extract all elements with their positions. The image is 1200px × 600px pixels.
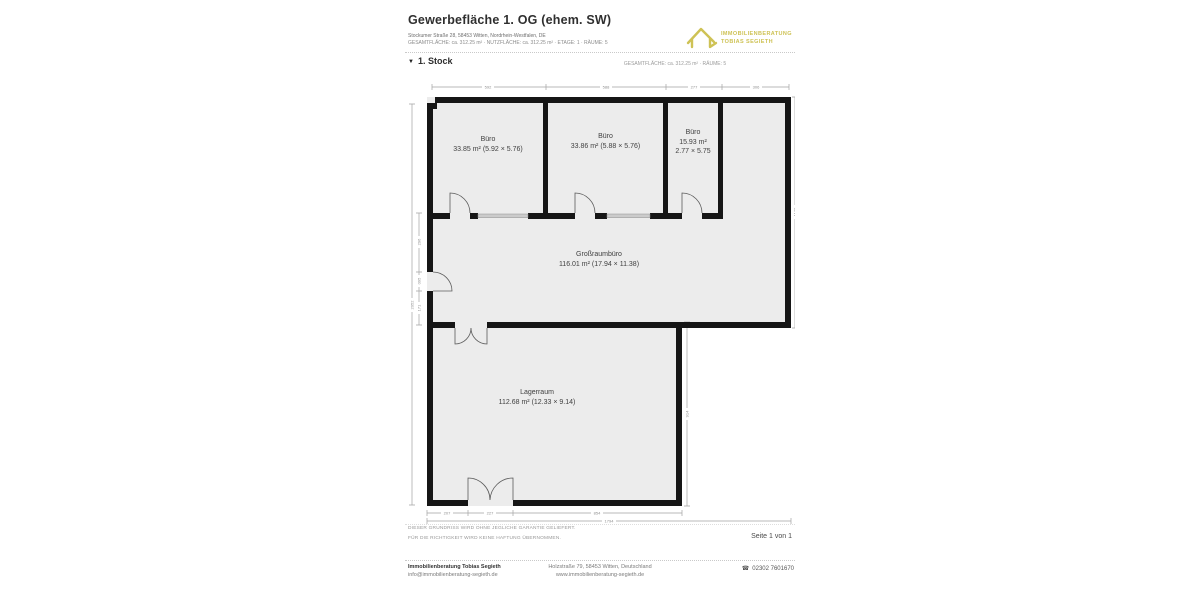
room-label-grossraumbuero: Großraumbüro 116.01 m² (17.94 × 11.38) [499, 250, 699, 269]
property-meta: GESAMTFLÄCHE: ca. 312.25 m² · NUTZFLÄCHE… [408, 40, 608, 46]
dim-label: 588 [603, 85, 610, 90]
dim-label: 1138 [793, 207, 796, 216]
dim-label: 592 [485, 85, 492, 90]
footer-phone-number: 02302 7601670 [752, 566, 794, 572]
footer-company-name: Immobilienberatung Tobias Segieth [408, 563, 501, 571]
dim-label: 277 [691, 85, 698, 90]
footer-address: Holzstraße 79, 58453 Witten, Deutschland [500, 563, 700, 571]
document-page: Gewerbefläche 1. OG (ehem. SW) Stockumer… [0, 0, 1200, 600]
dim-label: 854 [594, 511, 601, 516]
room-area: 116.01 m² (17.94 × 11.38) [499, 260, 699, 270]
room-label-lagerraum: Lagerraum 112.68 m² (12.33 × 9.14) [437, 388, 637, 407]
room-label-buero-2: Büro 33.86 m² (5.88 × 5.76) [548, 132, 663, 151]
page-title: Gewerbefläche 1. OG (ehem. SW) [408, 13, 611, 27]
logo-line-2: TOBIAS SEGIETH [721, 38, 792, 46]
footer-phone-block: ☎02302 7601670 [742, 565, 794, 572]
footer-email: info@immobilienberatung-segieth.de [408, 571, 501, 579]
dim-label: 1794 [605, 519, 615, 524]
footer-company-block: Immobilienberatung Tobias Segieth info@i… [408, 563, 501, 579]
room-size: 2.77 × 5.75 [665, 147, 721, 157]
room-name: Lagerraum [437, 388, 637, 398]
room-area: 33.86 m² (5.88 × 5.76) [548, 142, 663, 152]
phone-icon: ☎ [742, 566, 749, 572]
dim-label: 306 [753, 85, 760, 90]
floor-label: 1. Stock [418, 56, 453, 66]
footer-address-block: Holzstraße 79, 58453 Witten, Deutschland… [500, 563, 700, 579]
room-area: 15.93 m² [665, 138, 721, 148]
floor-summary: GESAMTFLÄCHE: ca. 312.25 m² · RÄUME: 5 [575, 61, 775, 67]
room-name: Büro [665, 128, 721, 138]
dim-label: 227 [487, 511, 494, 516]
document-content: Gewerbefläche 1. OG (ehem. SW) Stockumer… [405, 0, 797, 600]
room-label-buero-1: Büro 33.85 m² (5.92 × 5.76) [432, 135, 544, 154]
dim-label: 2052 [410, 300, 415, 310]
page-indicator: Seite 1 von 1 [751, 533, 792, 540]
room-name: Büro [432, 135, 544, 145]
floor-section-toggle[interactable]: ▼1. Stock [408, 56, 452, 66]
dim-label: 171 [417, 304, 422, 311]
disclaimer-line-2: FÜR DIE RICHTIGKEIT WIRD KEINE HAFTUNG Ü… [408, 536, 561, 541]
company-logo-text: IMMOBILIENBERATUNG TOBIAS SEGIETH [721, 30, 792, 46]
collapse-triangle-icon[interactable]: ▼ [408, 59, 414, 65]
dim-label: 207 [444, 511, 451, 516]
floor-plan: 592 588 277 306 2052 296 [405, 80, 795, 525]
room-fills [427, 97, 791, 506]
footer-divider [405, 560, 795, 561]
header-divider [405, 52, 795, 53]
room-name: Büro [548, 132, 663, 142]
dim-label: 095 [417, 277, 422, 284]
dim-label: 914 [685, 410, 690, 417]
footer-website: www.immobilienberatung-segieth.de [500, 571, 700, 579]
dim-label: 296 [417, 238, 422, 245]
room-name: Großraumbüro [499, 250, 699, 260]
disclaimer-line-1: DIESER GRUNDRISS WIRD OHNE JEGLICHE GARA… [408, 526, 576, 531]
room-area: 33.85 m² (5.92 × 5.76) [432, 145, 544, 155]
room-area: 112.68 m² (12.33 × 9.14) [437, 398, 637, 408]
plan-divider [405, 524, 795, 525]
room-label-buero-3: Büro 15.93 m² 2.77 × 5.75 [665, 128, 721, 157]
logo-line-1: IMMOBILIENBERATUNG [721, 30, 792, 38]
property-address: Stockumer Straße 28, 58453 Witten, Nordr… [408, 33, 546, 39]
